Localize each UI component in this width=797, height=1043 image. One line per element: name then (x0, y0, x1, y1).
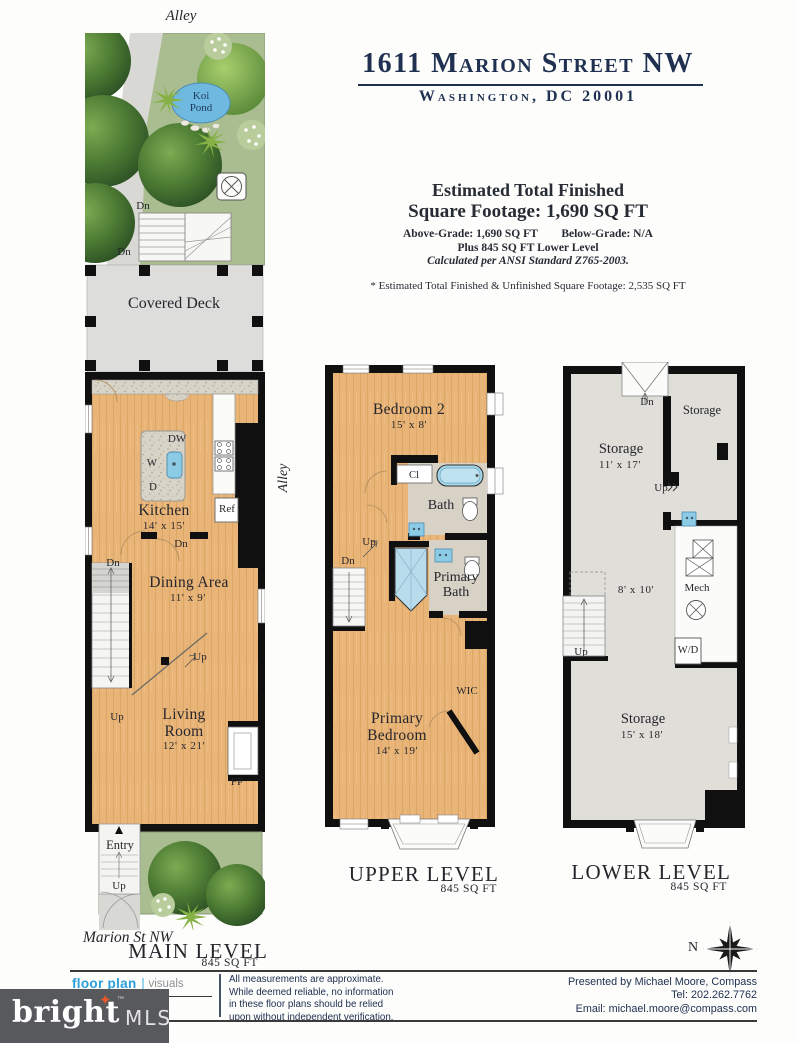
floor-plan-page: 1611 Marion Street NW Washington, DC 200… (0, 0, 797, 1043)
bath-label: Bath (428, 498, 454, 514)
footer-top-rule (70, 970, 757, 972)
dishwasher-label: DW (168, 433, 186, 445)
sink-icon (409, 523, 424, 536)
main-staircase (92, 563, 132, 688)
entry-up-label: Up (112, 880, 125, 892)
bay-window-icon (388, 815, 470, 849)
sqft-heading-line1: Estimated Total Finished (300, 180, 756, 201)
storage1-dims: 11' x 17' (599, 459, 641, 471)
sink-icon (682, 512, 696, 526)
lower-dn-label: Dn (640, 396, 653, 408)
alley-label-top: Alley (166, 8, 197, 25)
deck-dn-label: Dn (117, 246, 130, 258)
living-room-label: Living Room (142, 706, 226, 740)
stairs-dn-label: Dn (106, 557, 119, 569)
primary-bedroom-dims: 14' x 19' (376, 745, 418, 757)
fireplace-label: FP (231, 776, 243, 788)
flower-cluster-icon (204, 33, 232, 60)
kitchen-dims: 14' x 15' (143, 520, 185, 532)
lower-up-mid-label: Up (654, 482, 667, 494)
bay-window-icon (634, 820, 696, 848)
koi-pond-label: Koi Pond (181, 90, 221, 114)
sink-icon (435, 549, 452, 562)
bathtub-icon (437, 465, 483, 486)
washer-label: W (147, 457, 157, 469)
disclaimer-line: All measurements are approximate. (229, 974, 394, 987)
page-subtitle: Washington, DC 20001 (300, 88, 756, 106)
title-underline (358, 84, 703, 86)
stairs-up-label: Up (110, 711, 123, 723)
lower-level-plan (560, 362, 750, 854)
covered-deck (85, 265, 263, 372)
phone-line: Tel: 202.262.7762 (568, 989, 757, 1002)
storage2-label: Storage (621, 711, 665, 728)
trademark-symbol: ™ (117, 996, 124, 1003)
upper-level-plan (325, 363, 513, 855)
sqft-footnote: * Estimated Total Finished & Unfinished … (300, 280, 756, 292)
email-line: Email: michael.moore@compass.com (568, 1003, 757, 1016)
kitchen-label: Kitchen (138, 502, 189, 520)
stove-icon (215, 457, 233, 471)
stove-icon (215, 441, 233, 455)
garden-table-icon (217, 173, 246, 200)
bright-mls-logo: bright ✦ ™ MLS (0, 989, 169, 1043)
mid-up-label: Up (193, 651, 206, 663)
back-garden (85, 33, 265, 265)
disclaimer-text: All measurements are approximate. While … (229, 974, 394, 1024)
sqft-heading-line2: Square Footage: 1,690 SQ FT (300, 201, 756, 223)
bedroom2-dims: 15' x 8' (391, 419, 427, 431)
room-dims-label: 8' x 10' (618, 584, 654, 596)
kitchen-dn-label: Dn (174, 538, 187, 550)
disclaimer-line: While deemed reliable, no information (229, 987, 394, 1000)
living-room-dims: 12' x 21' (163, 740, 205, 752)
deck-stairs (139, 213, 231, 261)
dining-area-dims: 11' x 9' (170, 592, 206, 604)
above-grade-value: Above-Grade: 1,690 SQ FT (403, 228, 538, 240)
upper-dn-label: Dn (341, 555, 354, 567)
wic-label: WIC (456, 685, 477, 697)
sqft-lower-level-line: Plus 845 SQ FT Lower Level (300, 242, 756, 254)
flower-cluster-icon (151, 893, 175, 917)
upper-level-sqft: 845 SQ FT (329, 883, 497, 895)
lower-up-label: Up (574, 646, 587, 658)
footer-vertical-divider (219, 974, 221, 1017)
north-label: N (688, 940, 698, 956)
logo-divider-icon (142, 978, 144, 990)
presented-by-line: Presented by Michael Moore, Compass (568, 976, 757, 989)
entry-label: Entry (106, 838, 134, 853)
primary-bath-label: Primary Bath (421, 570, 491, 601)
bedroom2-label: Bedroom 2 (373, 401, 445, 419)
disclaimer-line: upon without independent verification. (229, 1012, 394, 1025)
main-level-sqft: 845 SQ FT (98, 957, 258, 969)
refrigerator-label: Ref (219, 503, 235, 515)
storage1-label: Storage (599, 441, 643, 458)
ansi-standard-line: Calculated per ANSI Standard Z765-2003. (300, 255, 756, 267)
lower-level-sqft: 845 SQ FT (561, 881, 727, 893)
logo-visuals-text: visuals (149, 978, 184, 990)
toilet-icon (463, 498, 478, 521)
storage2-dims: 15' x 18' (621, 729, 663, 741)
fireplace-icon (228, 721, 258, 781)
covered-deck-label: Covered Deck (128, 295, 220, 313)
brand-mls-text: MLS (125, 1006, 172, 1030)
dryer-label: D (149, 481, 157, 493)
upper-up-label: Up (362, 536, 375, 548)
mech-label: Mech (684, 582, 709, 594)
kitchen-counter (92, 380, 258, 394)
storage-right-label: Storage (683, 403, 721, 418)
sqft-grade-line: Above-Grade: 1,690 SQ FT Below-Grade: N/… (300, 228, 756, 240)
main-level-plan (85, 33, 265, 930)
mech-equipment-icon (687, 601, 706, 620)
closet-label: Cl (409, 470, 419, 481)
page-title: 1611 Marion Street NW (300, 48, 756, 80)
agent-contact-block: Presented by Michael Moore, Compass Tel:… (568, 976, 757, 1016)
alley-label-side: Alley (276, 448, 292, 508)
below-grade-value: Below-Grade: N/A (561, 228, 653, 240)
washer-dryer-label: W/D (678, 645, 698, 656)
dining-area-label: Dining Area (149, 574, 229, 592)
primary-bedroom-label: Primary Bedroom (352, 710, 442, 744)
star-icon: ✦ (99, 991, 112, 1010)
deck-dn-label: Dn (136, 200, 149, 212)
disclaimer-line: in these floor plans should be relied (229, 999, 394, 1012)
